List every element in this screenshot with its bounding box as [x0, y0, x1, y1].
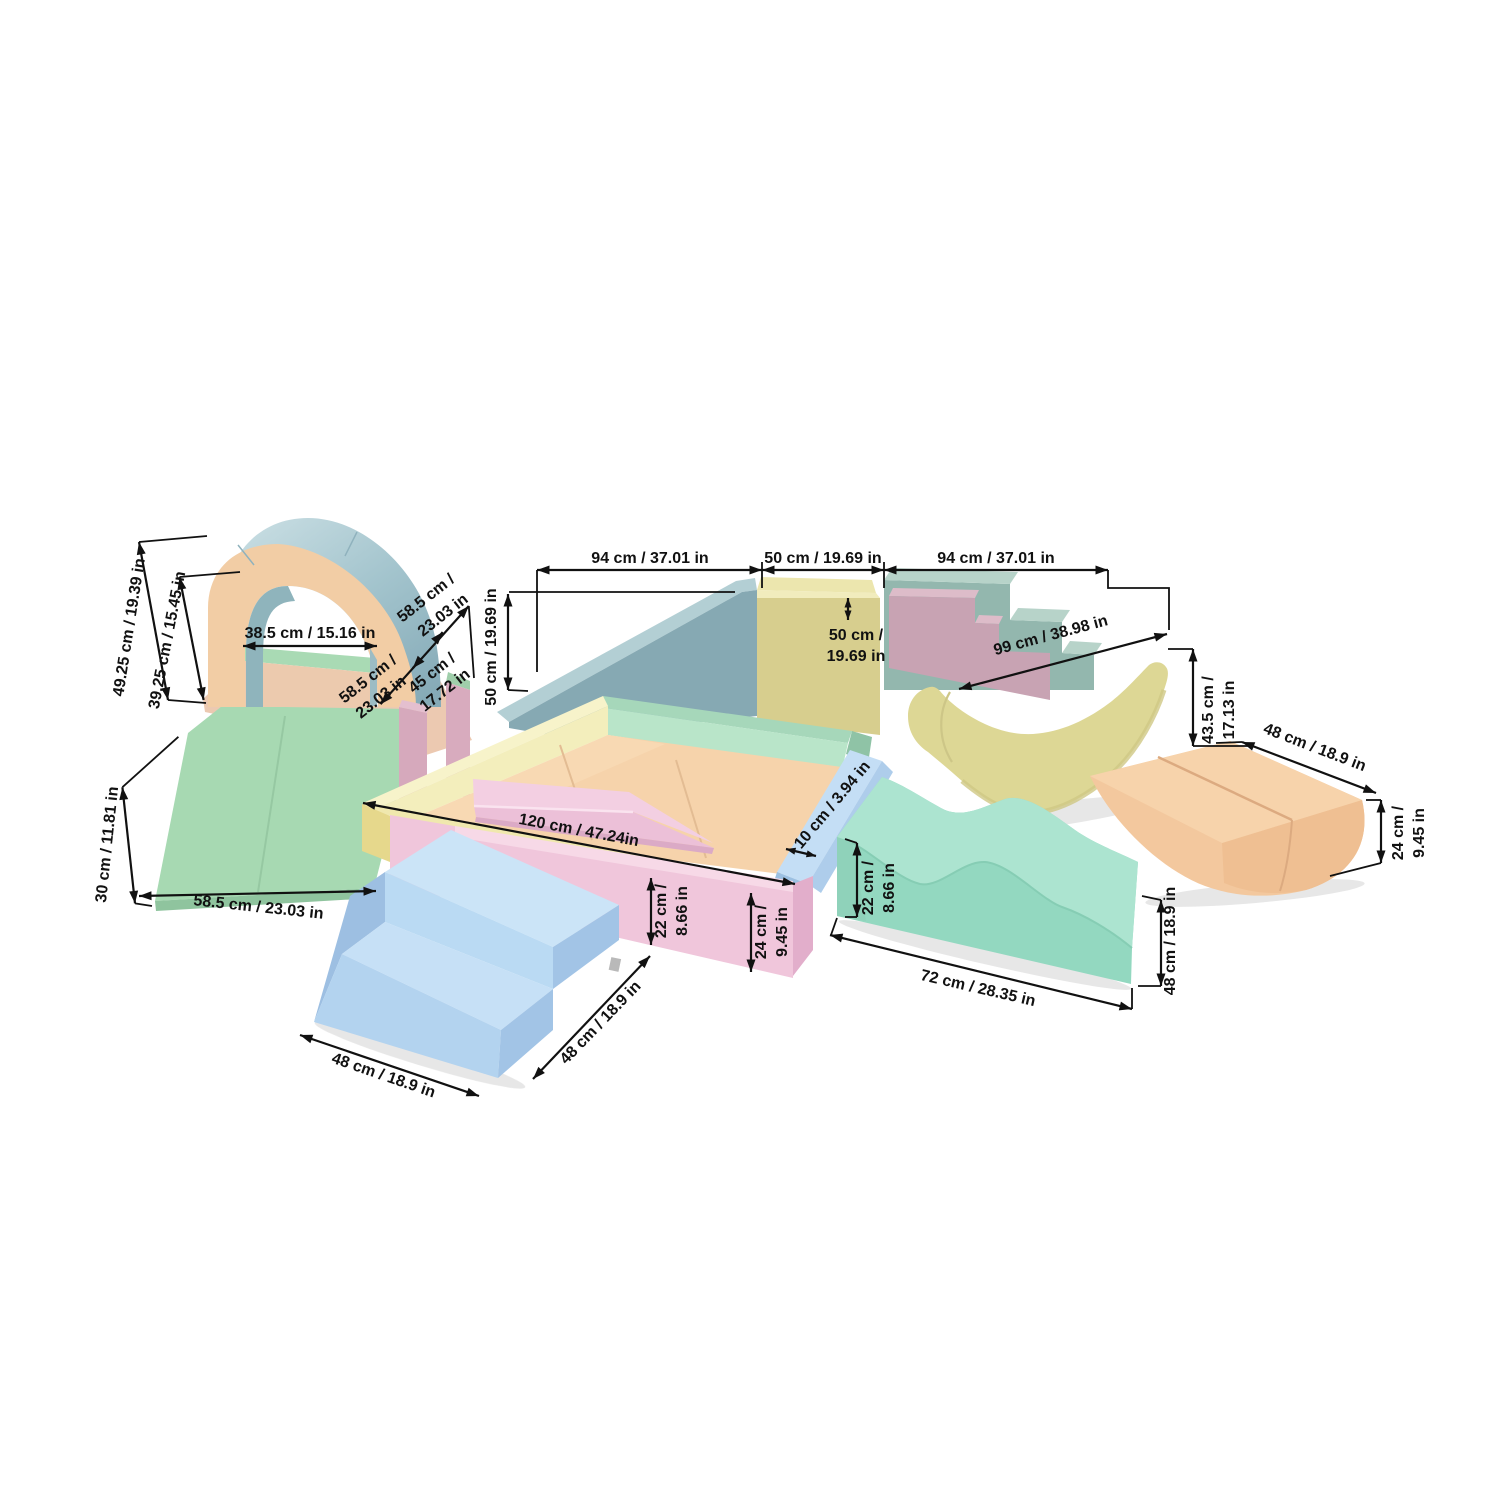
svg-text:38.5 cm / 15.16 in: 38.5 cm / 15.16 in: [245, 625, 376, 642]
svg-text:48 cm / 18.9 in: 48 cm / 18.9 in: [1162, 887, 1179, 996]
svg-text:94 cm / 37.01 in: 94 cm / 37.01 in: [591, 550, 708, 567]
svg-text:94 cm / 37.01 in: 94 cm / 37.01 in: [937, 550, 1054, 567]
svg-text:50 cm /: 50 cm /: [829, 627, 884, 644]
svg-text:9.45 in: 9.45 in: [1411, 808, 1428, 858]
svg-text:50 cm / 19.69 in: 50 cm / 19.69 in: [483, 588, 500, 705]
svg-text:24 cm /: 24 cm /: [1390, 805, 1407, 860]
svg-text:24 cm /: 24 cm /: [753, 904, 770, 959]
svg-text:43.5 cm /: 43.5 cm /: [1200, 676, 1217, 744]
svg-text:22 cm /: 22 cm /: [860, 860, 877, 915]
svg-text:19.69 in: 19.69 in: [827, 648, 886, 665]
svg-text:17.13 in: 17.13 in: [1221, 681, 1238, 740]
svg-text:9.45 in: 9.45 in: [774, 907, 791, 957]
svg-text:8.66 in: 8.66 in: [881, 863, 898, 913]
svg-text:8.66 in: 8.66 in: [674, 886, 691, 936]
svg-text:50 cm / 19.69 in: 50 cm / 19.69 in: [764, 550, 881, 567]
svg-text:22 cm /: 22 cm /: [653, 883, 670, 938]
